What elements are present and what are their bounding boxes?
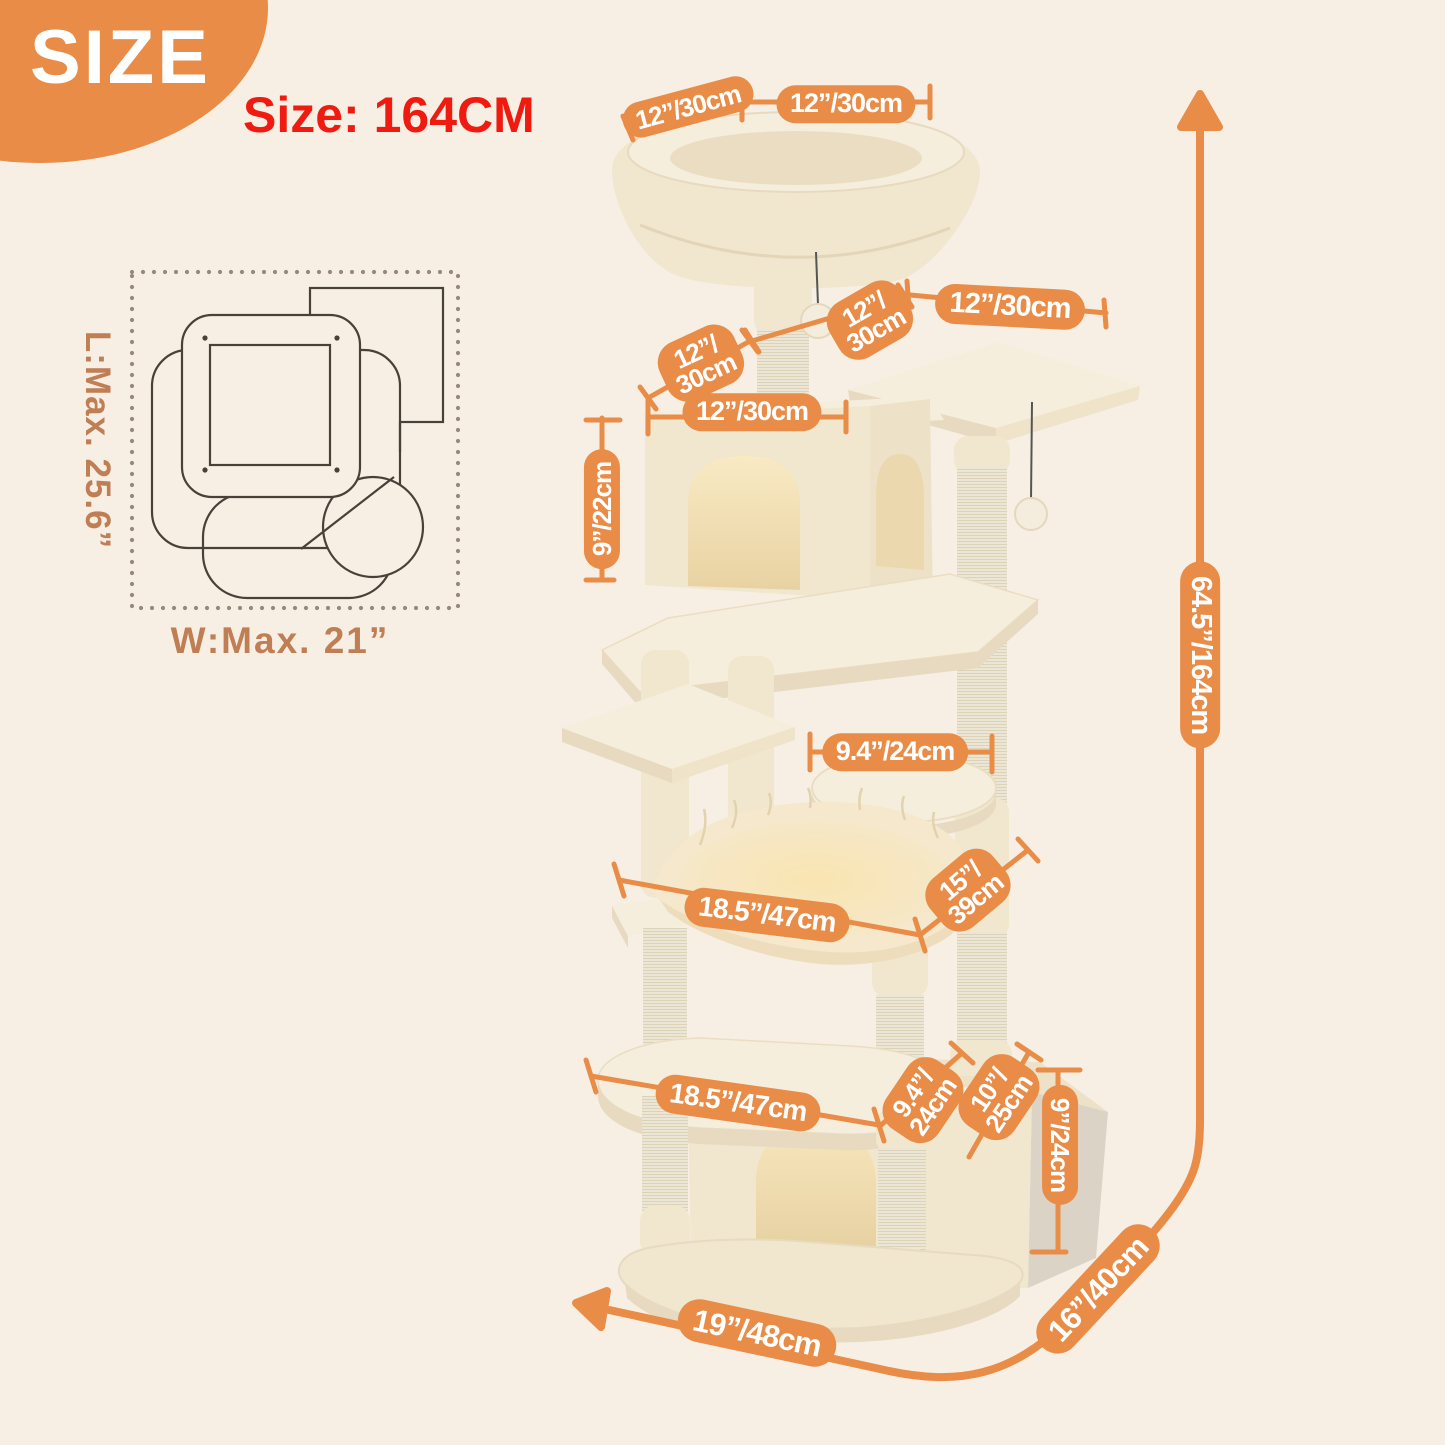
condo-arch-front [688,456,800,590]
arrowhead-left [576,1291,607,1327]
footprint-length-label: L:Max. 25.6” [77,331,117,549]
dim-top-perch-width: 12”/30cm [934,283,1086,331]
pompom-toy [1015,498,1047,530]
size-infographic: SIZE Size: 164CM L:Max. 25.6” W:Max. 21”… [0,0,1445,1445]
dim-condo-width: 12”/30cm [682,393,821,431]
dim-total-height: 64.5”/164cm [1180,561,1220,748]
footprint-diagram [132,272,458,608]
footprint-width-label: W:Max. 21” [171,620,390,662]
size-badge-label: SIZE [30,14,211,101]
dim-base-house-height: 9”/24cm [1042,1085,1078,1205]
arrowhead-top [1181,94,1219,127]
condo-arch-side [876,454,924,570]
dim-round-perch-width: 9.4”/24cm [822,733,968,771]
artwork-layer [0,0,1445,1445]
dim-condo-height: 9”/22cm [584,449,620,569]
page-title: Size: 164CM [243,86,535,144]
dim-top-basket-width-top: 12”/30cm [776,85,915,123]
footprint-top-basket [182,315,360,497]
top-basket [612,112,980,288]
